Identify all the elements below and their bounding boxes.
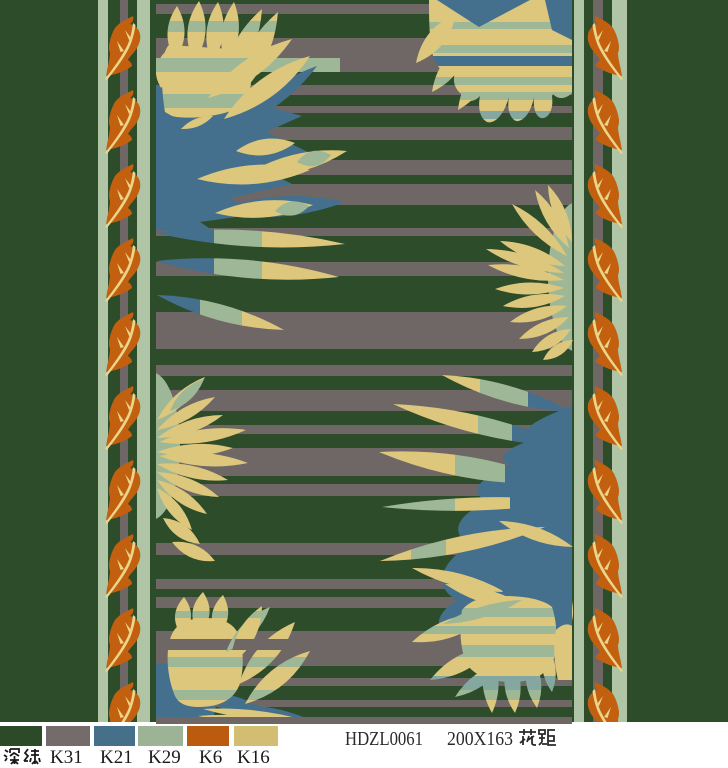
svg-text:200X163: 200X163 [447, 728, 513, 750]
svg-text:K31: K31 [50, 747, 83, 768]
svg-text:K29: K29 [148, 747, 181, 768]
svg-text:HDZL0061: HDZL0061 [345, 728, 423, 750]
svg-text:K21: K21 [100, 747, 133, 768]
svg-text:K6: K6 [199, 747, 222, 768]
svg-text:K16: K16 [237, 747, 270, 768]
